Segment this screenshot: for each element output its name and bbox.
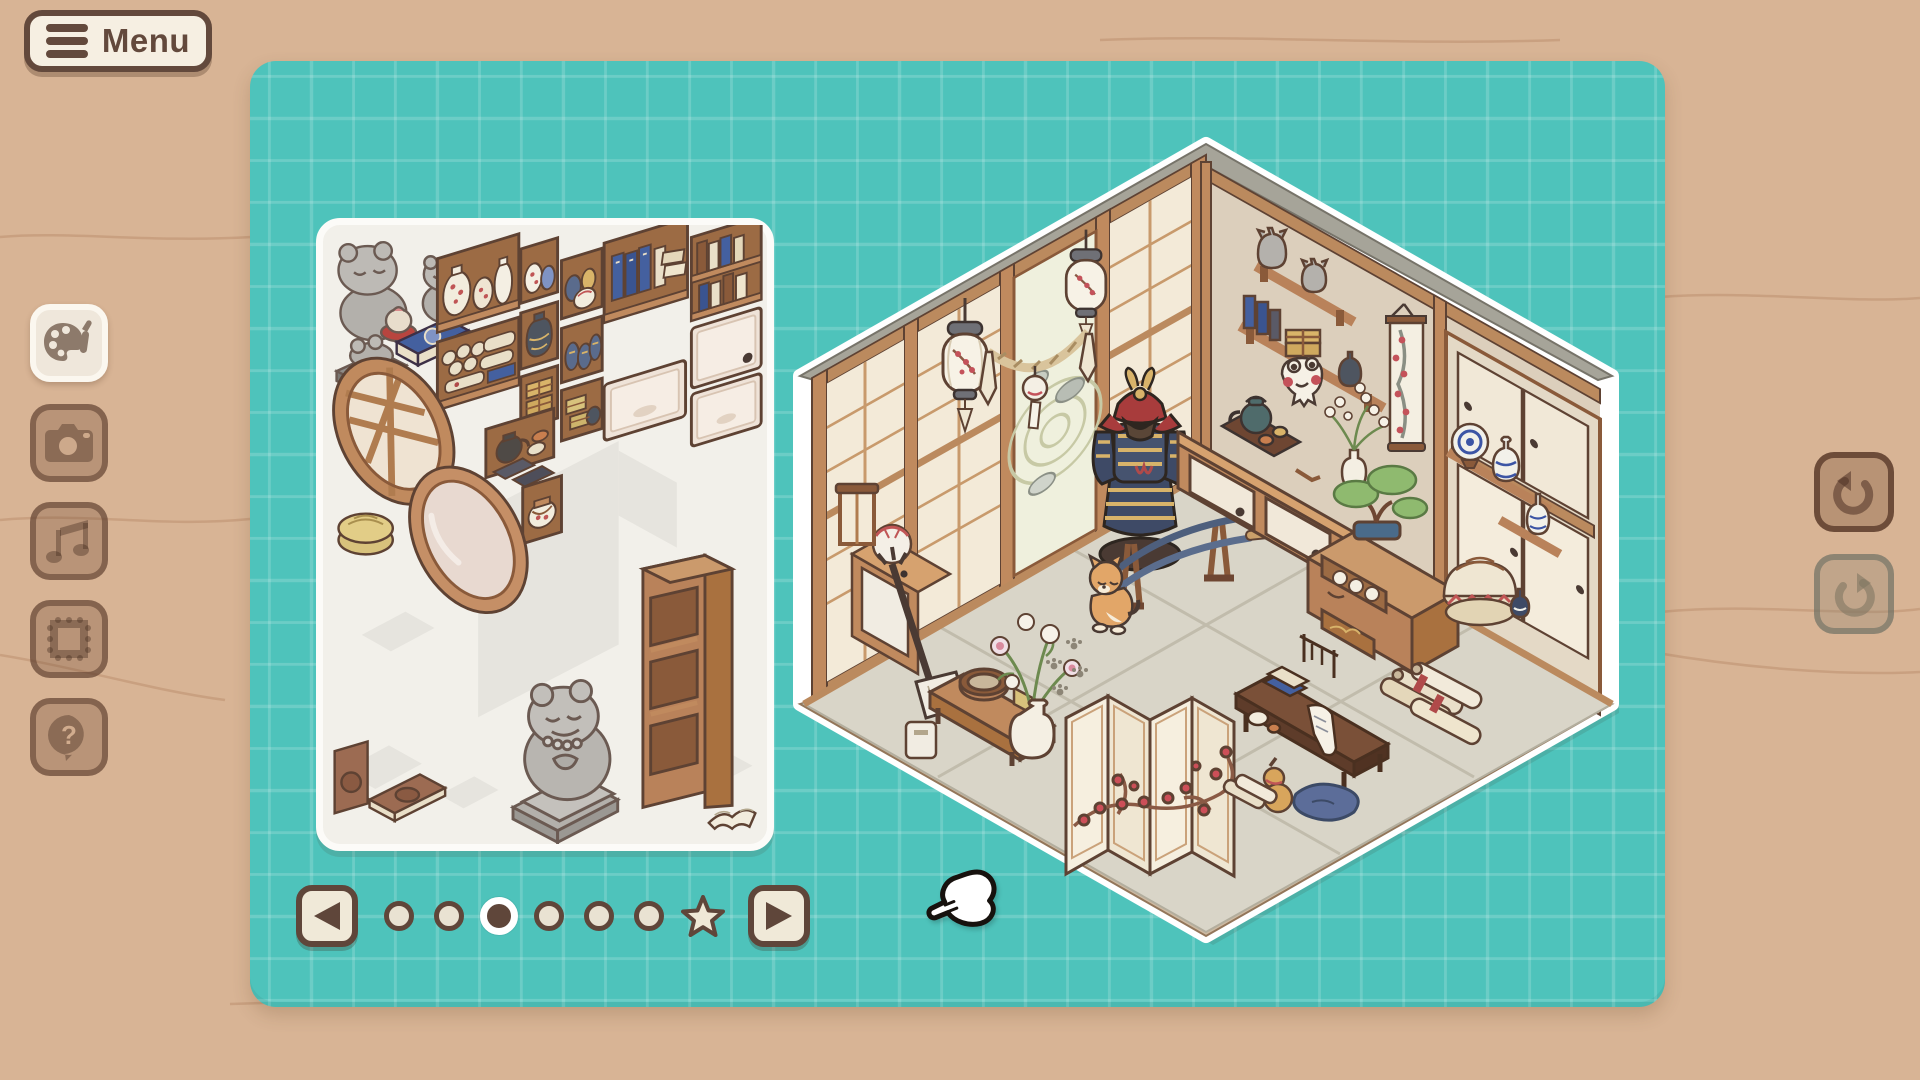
page-dot-star[interactable] [680, 893, 726, 939]
redo-arrow-icon [1831, 571, 1877, 617]
room-diorama[interactable] [788, 126, 1628, 946]
inventory-panel[interactable] [316, 218, 774, 851]
andon-lamp[interactable] [836, 484, 878, 544]
music-note-icon [46, 518, 92, 564]
item-brown-book[interactable] [335, 741, 368, 813]
item-shelf-vases[interactable] [521, 238, 558, 304]
folding-screen-plum[interactable] [1066, 696, 1234, 876]
corner-post [1201, 162, 1211, 474]
item-frog-buddha-statue[interactable] [513, 680, 618, 842]
item-tall-bookshelf[interactable] [643, 555, 732, 807]
item-shelf-dark-jar[interactable] [521, 302, 558, 369]
item-cream-drawer[interactable] [604, 360, 685, 441]
page-prev-button[interactable] [296, 885, 358, 947]
toolbar-music-button[interactable] [30, 502, 108, 580]
menu-label: Menu [102, 22, 190, 60]
undo-arrow-icon [1831, 469, 1877, 515]
item-straw-coaster[interactable] [339, 514, 393, 555]
page-dot-6[interactable] [634, 901, 664, 931]
question-glyph: ? [61, 720, 77, 750]
page-dot-5[interactable] [584, 901, 614, 931]
hamburger-icon [46, 24, 88, 58]
item-shelf-sake-jars[interactable] [561, 248, 602, 319]
toolbar-frame-button[interactable] [30, 600, 108, 678]
blue-cushion[interactable] [1294, 784, 1359, 820]
page-dot-2[interactable] [434, 901, 464, 931]
item-bookshelf-with-books[interactable] [691, 225, 761, 321]
page-next-button[interactable] [748, 885, 810, 947]
item-open-book[interactable] [709, 809, 756, 828]
menu-button[interactable]: Menu [24, 10, 212, 72]
palette-brush-icon [43, 319, 95, 367]
page-dot-1[interactable] [384, 901, 414, 931]
hanging-plum-scroll[interactable] [1386, 304, 1426, 451]
page-dot-4[interactable] [534, 901, 564, 931]
frame-icon [46, 616, 92, 662]
page-dot-3[interactable] [480, 897, 518, 935]
item-shelf-blue-jars[interactable] [561, 316, 602, 383]
item-frog-monk-statue[interactable] [339, 242, 417, 341]
right-arrow-icon [766, 902, 792, 930]
item-shelf-blue-books[interactable] [604, 225, 687, 323]
toolbar-decorate-button[interactable] [30, 304, 108, 382]
left-arrow-icon [314, 902, 340, 930]
toolbar-help-button[interactable]: ? [30, 698, 108, 776]
item-shelf-plum-vases[interactable] [437, 234, 518, 333]
inventory-pager [296, 883, 810, 949]
page-indicators [374, 893, 732, 939]
item-shelf-crates[interactable] [561, 378, 602, 441]
camera-icon [44, 422, 94, 464]
inventory-items [323, 225, 767, 844]
item-shelf-pot[interactable] [523, 476, 562, 544]
undo-button[interactable] [1814, 452, 1894, 532]
question-bubble-icon: ? [45, 713, 93, 761]
redo-button[interactable] [1814, 554, 1894, 634]
toolbar-photo-button[interactable] [30, 404, 108, 482]
